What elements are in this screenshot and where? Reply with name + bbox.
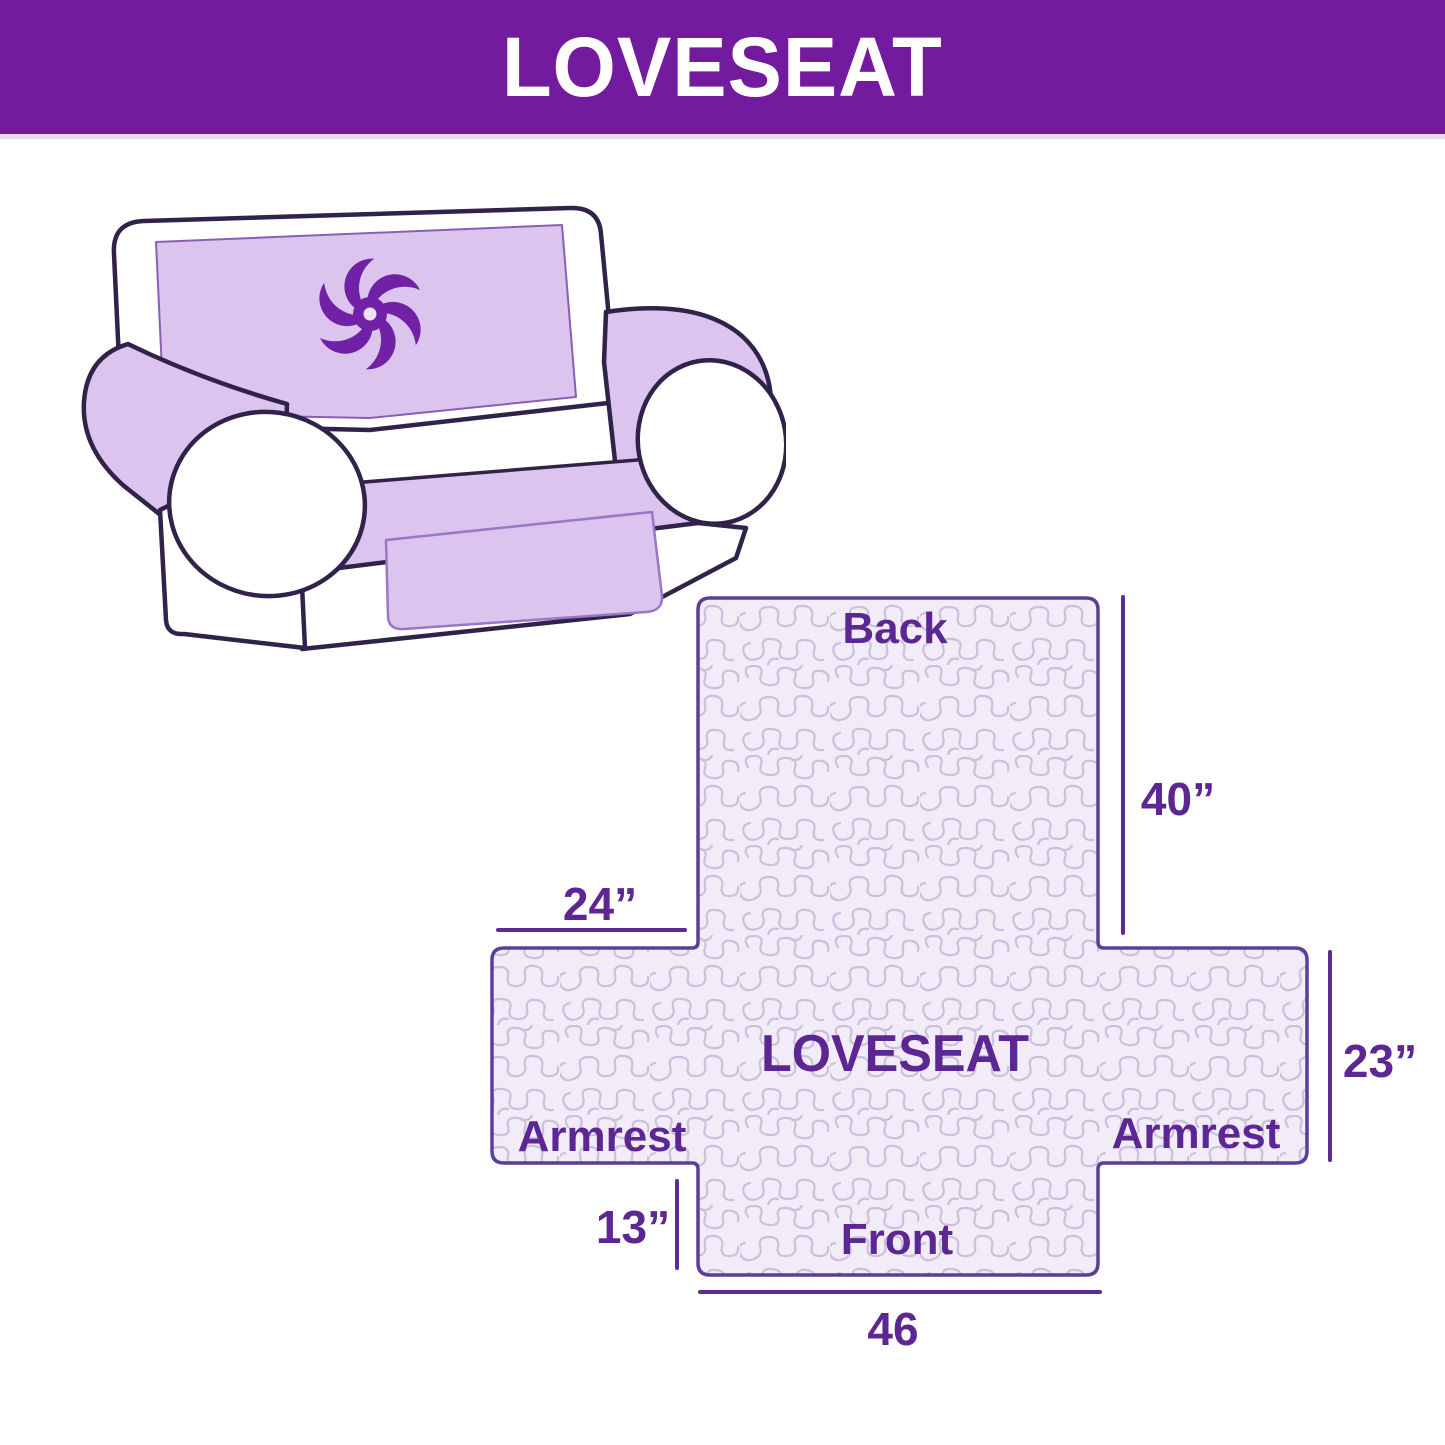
- armrest-right-label: Armrest: [1112, 1112, 1281, 1156]
- front-label: Front: [841, 1218, 953, 1262]
- dim-armrest-top-width-label: 24”: [563, 881, 637, 927]
- page: LOVESEAT: [0, 0, 1445, 1445]
- page-title: LOVESEAT: [502, 25, 943, 109]
- dim-back-height-label: 40”: [1141, 776, 1215, 822]
- armrest-left-label: Armrest: [518, 1115, 687, 1159]
- diagram-product-label: LOVESEAT: [761, 1028, 1029, 1080]
- header-banner: LOVESEAT: [0, 0, 1445, 134]
- diagram-cover-shape: [492, 598, 1307, 1275]
- dim-armrest-side-height-label: 23”: [1343, 1038, 1417, 1084]
- dim-front-width-label: 46: [867, 1306, 918, 1352]
- dim-front-skirt-drop-label: 13”: [596, 1204, 670, 1250]
- back-label: Back: [842, 607, 947, 651]
- header-divider: [0, 134, 1445, 139]
